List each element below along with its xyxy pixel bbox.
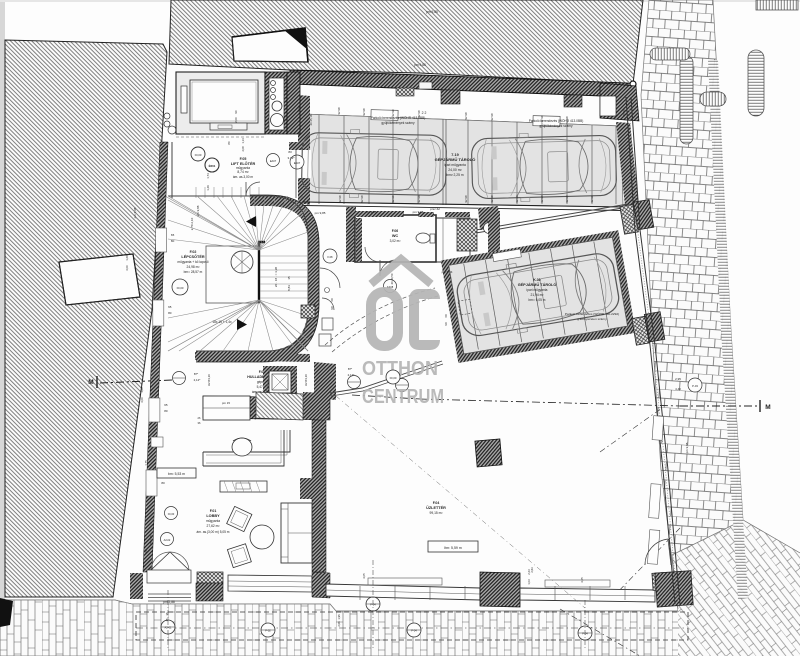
svg-text:40 40,50: 40 40,50 — [390, 273, 394, 284]
svg-text:bmv 2,25 m: bmv 2,25 m — [446, 173, 463, 177]
svg-text:92 98: 92 98 — [464, 195, 468, 202]
svg-text:20 . 18 . = 3,38: 20 . 18 . = 3,38 — [274, 267, 278, 287]
svg-text:pm 9,85: pm 9,85 — [366, 210, 377, 214]
svg-text:±0,00: ±0,00 — [177, 286, 184, 290]
svg-text:GÉPJÁRMŰ TÁROLÓ: GÉPJÁRMŰ TÁROLÓ — [435, 157, 476, 162]
svg-text:92 98: 92 98 — [391, 195, 395, 202]
svg-text:pm 6,98: pm 6,98 — [133, 207, 137, 218]
svg-text:8,74 m²: 8,74 m² — [237, 170, 249, 174]
svg-text:92 98: 92 98 — [338, 195, 342, 202]
svg-text:92 98: 92 98 — [464, 112, 468, 119]
svg-text:99,15 m²: 99,15 m² — [429, 511, 443, 515]
svg-text:Itm: 5,59 m: Itm: 5,59 m — [444, 546, 462, 550]
svg-text:92 98: 92 98 — [362, 108, 366, 115]
svg-text:M: M — [765, 404, 770, 411]
svg-text:27,62 m²: 27,62 m² — [206, 524, 220, 528]
svg-text:80: 80 — [171, 239, 175, 243]
svg-text:P-04: P-04 — [411, 629, 417, 633]
svg-text:1,74: 1,74 — [206, 173, 210, 179]
svg-text:A2-01: A2-01 — [165, 626, 172, 630]
svg-text:1,75: 1,75 — [144, 460, 148, 466]
svg-text:bm= 28,57 m: bm= 28,57 m — [184, 270, 203, 274]
svg-text:83: 83 — [288, 150, 292, 154]
svg-text:86: 86 — [144, 549, 148, 553]
svg-text:A2 Ø1,30: A2 Ø1,30 — [304, 374, 308, 386]
svg-text:pm 9,85: pm 9,85 — [426, 10, 438, 14]
svg-text:pm 9,34: pm 9,34 — [442, 270, 453, 274]
svg-text:2,63: 2,63 — [530, 567, 534, 573]
svg-text:1,95: 1,95 — [337, 614, 341, 620]
svg-text:2,12*: 2,12* — [194, 378, 202, 382]
svg-text:80: 80 — [168, 311, 172, 315]
svg-text:92 98: 92 98 — [360, 195, 364, 202]
svg-text:75 1,75: 75 1,75 — [149, 535, 153, 545]
svg-text:F.04: F.04 — [433, 501, 440, 505]
svg-text:65: 65 — [168, 305, 172, 309]
svg-text:ipari műgyanta: ipari műgyanta — [527, 288, 548, 292]
svg-text:pm 9,85: pm 9,85 — [685, 442, 689, 453]
svg-text:pm 9,85: pm 9,85 — [315, 211, 326, 215]
svg-text:80: 80 — [161, 481, 165, 485]
svg-text:15: 15 — [165, 618, 169, 621]
svg-text:92 98: 92 98 — [490, 195, 494, 202]
svg-text:90: 90 — [444, 322, 448, 326]
svg-text:LÉPCSŐTÉR: LÉPCSŐTÉR — [181, 254, 204, 259]
svg-text:92 98: 92 98 — [417, 195, 421, 202]
svg-text:3,02 m²: 3,02 m² — [390, 239, 401, 243]
svg-text:60: 60 — [444, 314, 448, 318]
svg-text:gyűjtőkèmények szárny: gyűjtőkèmények szárny — [381, 121, 415, 125]
svg-text:2,00: 2,00 — [234, 117, 238, 123]
svg-text:21,94 m²: 21,94 m² — [530, 293, 544, 297]
svg-text:3,00: 3,00 — [140, 397, 144, 403]
svg-text:1,14: 1,14 — [241, 138, 245, 144]
svg-text:Parkoló berendezés (WÖHR 413.0: Parkoló berendezés (WÖHR 413.0BB) — [529, 119, 584, 123]
svg-text:pm 2,88: pm 2,88 — [163, 600, 175, 604]
svg-text:É601: É601 — [209, 163, 216, 168]
svg-text:18x 15 + 1,4x: 18x 15 + 1,4x — [212, 320, 232, 324]
svg-text:24,00 m²: 24,00 m² — [448, 168, 462, 172]
svg-text:GÉPJÁRMŰ TÁROLÓ: GÉPJÁRMŰ TÁROLÓ — [518, 282, 557, 287]
svg-text:2 2: 2 2 — [422, 111, 427, 115]
svg-text:műgyanta: műgyanta — [206, 519, 220, 523]
svg-text:A2 Ø1,30: A2 Ø1,30 — [207, 374, 211, 386]
svg-text:2,70 2,10: 2,70 2,10 — [190, 217, 194, 230]
svg-text:P-02: P-02 — [265, 629, 271, 633]
svg-text:22 90: 22 90 — [297, 105, 301, 112]
svg-text:90 90: 90 90 — [622, 109, 626, 116]
svg-text:LOBBY: LOBBY — [206, 514, 220, 518]
svg-text:WC: WC — [392, 234, 399, 238]
svg-text:92 98: 92 98 — [540, 195, 544, 202]
svg-text:prsz.62: prsz.62 — [430, 207, 440, 211]
svg-text:1,60: 1,60 — [125, 255, 129, 261]
svg-text:2,08: 2,08 — [241, 146, 245, 152]
svg-text:2,12*: 2,12* — [348, 373, 356, 377]
svg-text:65: 65 — [171, 233, 175, 237]
svg-text:1,03: 1,03 — [527, 579, 531, 585]
svg-text:92 98: 92 98 — [590, 195, 594, 202]
svg-text:Parkoló berendezés (WÖHR 440-2: Parkoló berendezés (WÖHR 440-2292) — [565, 312, 619, 316]
svg-text:F.02: F.02 — [190, 250, 197, 254]
svg-text:80: 80 — [164, 409, 168, 413]
svg-text:A2-02: A2-02 — [164, 539, 171, 542]
svg-text:40 45,18: 40 45,18 — [309, 114, 313, 125]
svg-text:bm= 6,05 m: bm= 6,05 m — [529, 298, 546, 302]
svg-text:15: 15 — [287, 276, 291, 280]
svg-text:EA07: EA07 — [270, 159, 277, 163]
svg-text:pm 15: pm 15 — [222, 401, 230, 405]
svg-text:3,00: 3,00 — [125, 265, 129, 271]
svg-text:80: 80 — [227, 141, 231, 145]
svg-text:F.06: F.06 — [392, 229, 399, 233]
svg-text:92 98: 92 98 — [565, 195, 569, 202]
svg-text:±0,00: ±0,00 — [195, 153, 202, 157]
svg-text:4,05: 4,05 — [362, 573, 366, 579]
svg-text:±0,00: ±0,00 — [390, 376, 397, 380]
svg-text:P-03: P-03 — [692, 384, 698, 388]
svg-text:±0,00: ±0,00 — [168, 512, 175, 516]
svg-text:2,95: 2,95 — [675, 377, 681, 381]
svg-text:F.01: F.01 — [210, 509, 217, 513]
svg-text:EA07: EA07 — [294, 161, 301, 165]
svg-text:24,98 m²: 24,98 m² — [186, 265, 200, 269]
svg-text:M: M — [88, 379, 93, 386]
svg-text:Parkoló berendezés (WÖHR 413.0: Parkoló berendezés (WÖHR 413.0BB) — [371, 116, 426, 120]
svg-text:bm: 5,53 m: bm: 5,53 m — [168, 472, 185, 476]
svg-text:gyűjtőkèmények szárny: gyűjtőkèmények szárny — [539, 124, 573, 128]
svg-text:92 98: 92 98 — [490, 113, 494, 120]
svg-text:pm 9,88: pm 9,88 — [196, 205, 200, 216]
svg-text:92 98: 92 98 — [337, 107, 341, 114]
svg-text:2,06: 2,06 — [337, 621, 341, 627]
svg-text:90: 90 — [234, 110, 238, 114]
svg-text:1,29: 1,29 — [206, 185, 210, 191]
svg-text:ám. as.3,00 m: ám. as.3,00 m — [233, 175, 254, 179]
svg-text:pm 9,85: pm 9,85 — [414, 63, 426, 67]
svg-text:4,40: 4,40 — [675, 387, 681, 391]
svg-text:ÜZLETTÉR: ÜZLETTÉR — [426, 505, 446, 510]
svg-text:CENTRUM: CENTRUM — [362, 386, 444, 408]
svg-text:35: 35 — [165, 612, 169, 615]
svg-text:3,13*: 3,13* — [287, 156, 295, 160]
svg-text:ipari műgyanta: ipari műgyanta — [444, 163, 466, 167]
svg-text:pm 9,85: pm 9,85 — [413, 210, 424, 214]
svg-text:F.08: F.08 — [328, 255, 333, 259]
svg-text:P-04: P-04 — [582, 632, 588, 636]
svg-text:műgyanta + kő lapcső: műgyanta + kő lapcső — [177, 260, 208, 264]
svg-text:g.kőrnyezeten szárny: g.kőrnyezeten szárny — [577, 317, 607, 321]
svg-text:60: 60 — [330, 298, 334, 302]
svg-text:F.05: F.05 — [240, 157, 247, 161]
svg-text:K.08: K.08 — [533, 278, 540, 282]
svg-text:1,60: 1,60 — [140, 387, 144, 393]
svg-text:65: 65 — [164, 403, 168, 407]
svg-text:92 98: 92 98 — [515, 195, 519, 202]
svg-text:P-04: P-04 — [370, 603, 376, 607]
svg-text:8,83: 8,83 — [287, 285, 291, 291]
svg-text:ám. as.(3,00 m) 5,05 m: ám. as.(3,00 m) 5,05 m — [197, 530, 230, 534]
